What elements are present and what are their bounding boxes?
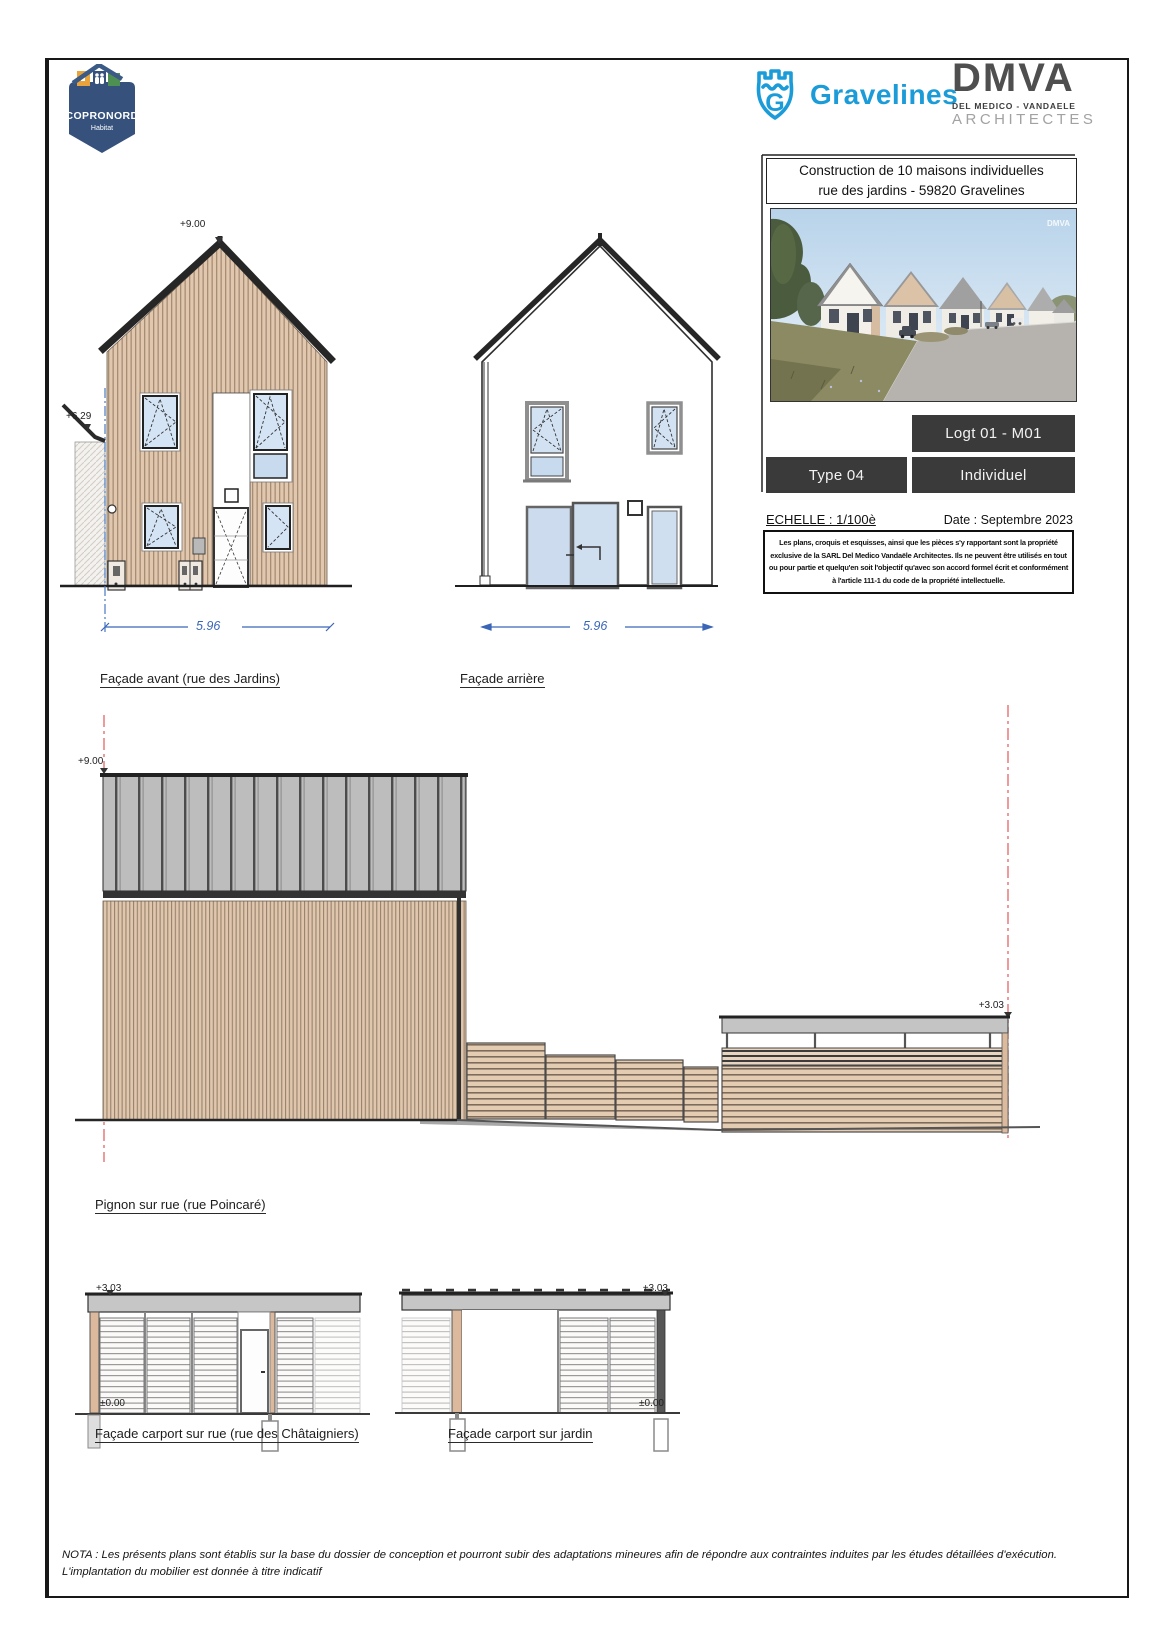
dmva-logo: DMVA DEL MEDICO - VANDAELE ARCHITECTES [952, 58, 1082, 128]
patio-door [527, 507, 571, 588]
gable-wall-clad [103, 901, 466, 1120]
level-ridge-avant: +9.00 [180, 219, 205, 230]
window [145, 506, 178, 548]
svg-text:G: G [765, 89, 784, 117]
nota-line2: L'implantation du mobilier est donnée à … [62, 1566, 322, 1578]
fence-panels [467, 1043, 718, 1122]
roof-slope-face [103, 775, 466, 891]
lot-number-box: Logt 01 - M01 [912, 415, 1075, 452]
caption-carport-rue: Façade carport sur rue (rue des Châtaign… [95, 1426, 359, 1443]
facade-arriere-drawing [455, 233, 718, 630]
carport-post [452, 1310, 462, 1413]
legal-notice-box: Les plans, croquis et esquisses, ainsi q… [763, 530, 1074, 594]
facade-avant-drawing [60, 236, 352, 632]
scale-label: ECHELLE : 1/100è [766, 512, 876, 527]
dmva-architectes: ARCHITECTES [952, 111, 1082, 128]
dmva-acronym: DMVA [952, 58, 1082, 98]
caption-facade-arriere: Façade arrière [460, 671, 545, 688]
caption-carport-jardin: Façade carport sur jardin [448, 1426, 593, 1443]
level-ridge-pignon: +9.00 [78, 756, 103, 767]
project-photo: DMVA [770, 208, 1077, 402]
legal-line: Les plans, croquis et esquisses, ainsi q… [779, 537, 1058, 550]
level-neighbor: +6.29 [66, 411, 91, 422]
caption-pignon: Pignon sur rue (rue Poincaré) [95, 1197, 266, 1214]
gravelines-crest-icon: G [750, 66, 802, 124]
level-roof-carport-rue: +3.03 [96, 1283, 121, 1294]
copronord-name: COPRONORD [65, 110, 138, 122]
window [266, 506, 290, 549]
entry-door [214, 508, 248, 587]
caption-facade-avant: Façade avant (rue des Jardins) [100, 671, 280, 688]
gravelines-wordmark: Gravelines [810, 79, 958, 111]
project-line1: Construction de 10 maisons individuelles [799, 161, 1044, 181]
pignon-drawing [75, 705, 1040, 1162]
level-ground-carport-jardin: ±0.00 [618, 1398, 664, 1409]
project-title-box: Construction de 10 maisons individuelles… [766, 158, 1077, 204]
legal-line: exclusive de la SARL Del Medico Vandaële… [770, 550, 1067, 563]
legal-line: à l'article 111-1 du code de la propriét… [832, 575, 1005, 588]
project-line2: rue des jardins - 59820 Gravelines [818, 181, 1024, 201]
carport-roof [402, 1295, 670, 1310]
dimension-arriere: 5.96 [583, 619, 607, 633]
photo-watermark: DMVA [1047, 219, 1070, 228]
window [143, 396, 177, 448]
copronord-subtitle: Habitat [91, 125, 113, 132]
date-label: Date : Septembre 2023 [873, 513, 1073, 527]
level-roof-carport-jardin: +3.03 [622, 1283, 668, 1294]
footing [654, 1419, 668, 1451]
carport-side [719, 1017, 1010, 1133]
dimension-avant: 5.96 [196, 619, 220, 633]
carport-post [90, 1312, 99, 1413]
legal-line: ou pour partie et quelqu'en soit l'objec… [769, 562, 1068, 575]
category-box: Individuel [912, 457, 1075, 493]
neighbor-wall [75, 442, 105, 585]
plan-sheet: COPRONORD Habitat G Gravelines DMVA DEL … [0, 0, 1169, 1648]
window [254, 394, 287, 450]
nota-line1: NOTA : Les présents plans sont établis s… [62, 1549, 1057, 1561]
level-ground-carport-rue: ±0.00 [100, 1398, 125, 1409]
type-box: Type 04 [766, 457, 907, 493]
carport-roof [88, 1295, 360, 1312]
level-carport-pignon: +3.03 [958, 1000, 1004, 1011]
dmva-firm-name: DEL MEDICO - VANDAELE [952, 101, 1082, 111]
copronord-logo: COPRONORD Habitat [62, 64, 142, 160]
